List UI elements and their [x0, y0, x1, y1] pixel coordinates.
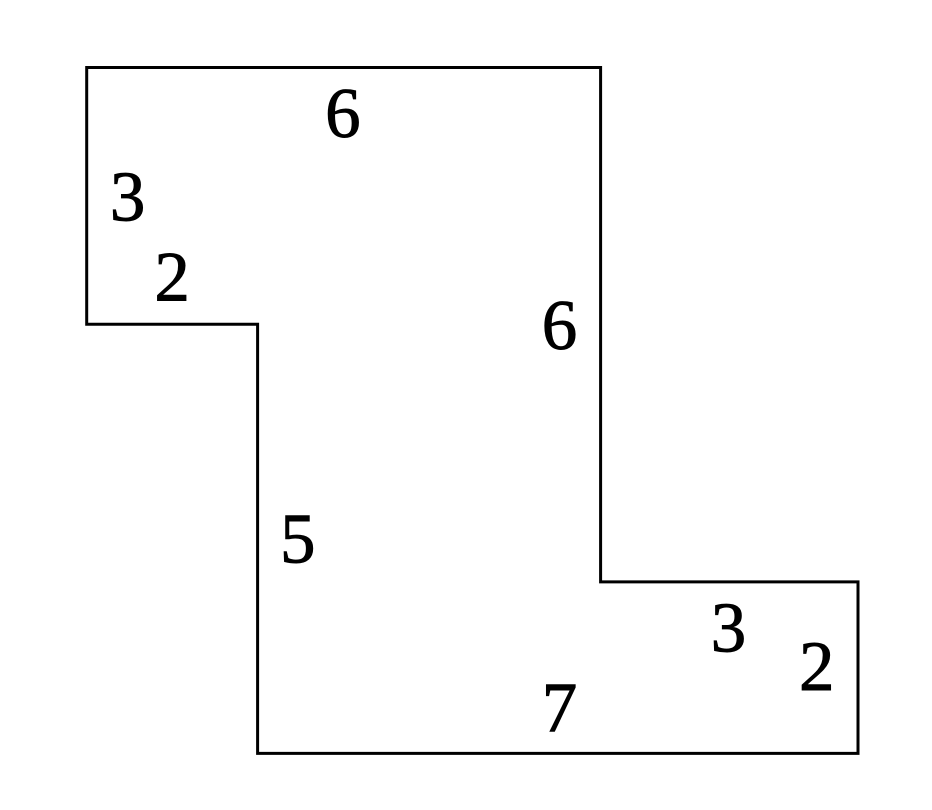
svg-text:2: 2: [154, 239, 190, 317]
svg-text:3: 3: [110, 158, 146, 236]
svg-text:2: 2: [799, 628, 835, 706]
svg-text:5: 5: [280, 500, 316, 578]
svg-text:7: 7: [542, 669, 578, 747]
svg-text:6: 6: [542, 287, 578, 365]
svg-text:6: 6: [325, 75, 361, 153]
svg-text:3: 3: [711, 589, 747, 667]
